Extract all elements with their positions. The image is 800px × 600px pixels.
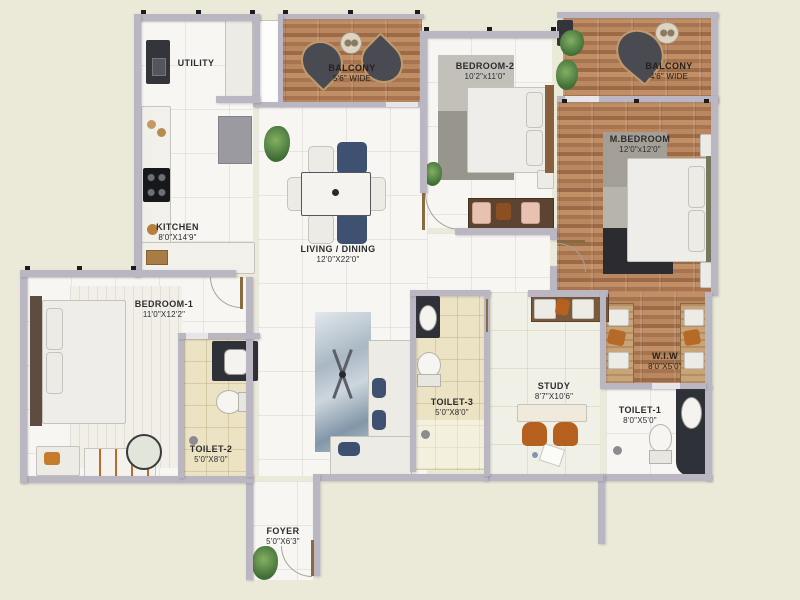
room-dims: 8'0"X5'0" xyxy=(607,416,673,427)
washer-door xyxy=(152,58,166,76)
dining-chair-navy xyxy=(337,142,367,174)
wardrobe-shelf-item xyxy=(684,309,704,326)
room-name: BEDROOM-2 xyxy=(445,60,525,72)
room-name: TOILET-3 xyxy=(420,396,484,408)
wall xyxy=(134,270,236,277)
shower-head xyxy=(421,430,430,439)
room-dims: 5'0"X8'0" xyxy=(178,455,244,466)
room-label-living-dining: LIVING / DINING 12'0"X22'0" xyxy=(288,243,388,266)
pillow xyxy=(688,166,705,208)
room-label-bedroom-1: BEDROOM-1 11'0"X12'2" xyxy=(123,298,205,321)
cabinet-item xyxy=(44,452,60,465)
room-dims: 5'6" WIDE xyxy=(312,74,392,85)
bench-cushion xyxy=(534,299,556,319)
room-label-bedroom-2: BEDROOM-2 10'2"x11'0" xyxy=(445,60,525,83)
wall xyxy=(483,474,603,481)
kitchen-bowl xyxy=(147,120,156,129)
study-chair xyxy=(553,422,578,446)
wardrobe-shelf-item xyxy=(607,328,627,346)
bench-pillow xyxy=(472,202,491,224)
pillow xyxy=(46,308,63,350)
wall xyxy=(420,31,559,38)
room-name: BALCONY xyxy=(630,60,708,72)
wall xyxy=(528,290,608,297)
room-name: STUDY xyxy=(518,380,590,392)
pillow xyxy=(688,210,705,252)
sofa-pillow xyxy=(372,378,386,398)
sink xyxy=(419,305,437,331)
toilet-tank xyxy=(649,450,672,464)
pillow xyxy=(526,130,543,166)
refrigerator xyxy=(218,116,252,164)
room-dims: 5'0"X8'0" xyxy=(420,408,484,419)
room-label-wiw: W.I.W 8'0"X5'0" xyxy=(634,350,696,373)
wall xyxy=(134,14,260,21)
master-bedroom-door xyxy=(557,240,585,243)
room-label-study: STUDY 8'7"X10'6" xyxy=(518,380,590,403)
sink xyxy=(224,349,248,375)
room-dims: 10'2"x11'0" xyxy=(445,72,525,83)
room-name: UTILITY xyxy=(166,57,226,69)
dining-chair-navy xyxy=(337,212,367,244)
wall xyxy=(550,228,557,240)
sofa-pillow xyxy=(338,442,360,456)
wall xyxy=(598,474,712,481)
wall xyxy=(20,476,253,483)
room-name: M.BEDROOM xyxy=(601,133,679,145)
bench-pillow xyxy=(496,203,511,220)
toilet-3-door xyxy=(486,299,488,332)
room-name: BALCONY xyxy=(312,62,392,74)
dining-chair-white xyxy=(308,146,334,174)
round-chair xyxy=(126,434,162,470)
wall xyxy=(216,96,260,103)
room-dims: 12'0"x12'0" xyxy=(601,145,679,156)
room-name: FOYER xyxy=(252,525,314,537)
room-name: LIVING / DINING xyxy=(288,243,388,255)
wall xyxy=(705,385,712,481)
bedroom-1-door xyxy=(240,277,243,309)
study-desk xyxy=(517,404,587,422)
balcony-table xyxy=(340,32,362,54)
room-name: BEDROOM-1 xyxy=(123,298,205,310)
room-dims: 5'0"X6'3" xyxy=(252,537,314,548)
balcony-1-door xyxy=(386,102,418,107)
wall xyxy=(410,290,416,472)
room-label-utility: UTILITY xyxy=(166,57,226,69)
room-label-kitchen: KITCHEN 8'0"X14'9" xyxy=(140,221,215,244)
wall xyxy=(278,14,283,106)
room-label-master-bedroom: M.BEDROOM 12'0"x12'0" xyxy=(601,133,679,156)
fan-hub xyxy=(339,371,346,378)
wardrobe-shelf-item xyxy=(608,309,629,326)
room-label-balcony-2: BALCONY 4'6" WIDE xyxy=(630,60,708,83)
room-dims: 8'0"X5'0" xyxy=(634,362,696,373)
toilet-tank xyxy=(417,374,441,387)
kitchen-bowl xyxy=(157,128,166,137)
room-name: KITCHEN xyxy=(140,221,215,233)
utility-cabinet xyxy=(225,20,253,100)
wall xyxy=(320,474,488,481)
bench-pillow xyxy=(521,202,540,224)
room-label-foyer: FOYER 5'0"X6'3" xyxy=(252,525,314,548)
floor-plan: UTILITY BALCONY 5'6" WIDE BEDROOM-2 10'2… xyxy=(0,0,800,600)
toilet-2-door xyxy=(186,333,208,339)
table-centerpiece xyxy=(332,189,339,196)
study-dot xyxy=(532,452,538,458)
wall xyxy=(455,228,557,235)
bench-cushion xyxy=(572,299,594,319)
balcony-2-door xyxy=(565,96,599,102)
room-name: TOILET-1 xyxy=(607,404,673,416)
room-label-toilet-2: TOILET-2 5'0"X8'0" xyxy=(178,443,244,466)
wardrobe-shelf-item xyxy=(683,329,701,347)
cooktop xyxy=(143,168,170,202)
room-dims: 12'0"X22'0" xyxy=(288,255,388,266)
living-corridor-floor xyxy=(427,233,550,292)
sink xyxy=(681,397,702,429)
wall xyxy=(420,38,427,193)
wall xyxy=(711,12,718,104)
room-dims: 11'0"X12'2" xyxy=(123,310,205,321)
wall xyxy=(313,474,320,576)
room-dims: 8'7"X10'6" xyxy=(518,392,590,403)
bedroom-1-headboard xyxy=(30,296,42,426)
study-chair xyxy=(522,422,547,446)
dining-chair-white xyxy=(308,214,334,244)
toilet xyxy=(649,424,672,452)
wall xyxy=(20,270,141,277)
bedroom-2-headboard xyxy=(545,85,554,173)
pillow xyxy=(526,92,543,128)
room-dims: 4'6" WIDE xyxy=(630,72,708,83)
wall xyxy=(253,14,260,106)
shower-area xyxy=(416,420,485,468)
sofa-pillow xyxy=(372,410,386,430)
wardrobe-shelf-item xyxy=(608,352,629,369)
wall xyxy=(410,290,490,296)
room-name: W.I.W xyxy=(634,350,696,362)
room-label-toilet-1: TOILET-1 8'0"X5'0" xyxy=(607,404,673,427)
room-label-toilet-3: TOILET-3 5'0"X8'0" xyxy=(420,396,484,419)
bench-pillow xyxy=(555,298,571,316)
wall xyxy=(711,96,718,296)
wall xyxy=(246,277,253,477)
balcony-table xyxy=(655,22,679,44)
wall xyxy=(20,270,27,483)
wall xyxy=(557,12,718,18)
cutting-board xyxy=(146,250,168,265)
room-dims: 8'0"X14'9" xyxy=(140,233,215,244)
pillow xyxy=(46,352,63,394)
wall xyxy=(598,474,605,544)
toilet-1-door xyxy=(652,383,680,389)
room-name: TOILET-2 xyxy=(178,443,244,455)
wall xyxy=(600,292,606,387)
wall xyxy=(278,14,424,19)
shower-head xyxy=(613,446,622,455)
wall xyxy=(705,292,712,389)
bedroom-2-door xyxy=(422,193,425,230)
room-label-balcony-1: BALCONY 5'6" WIDE xyxy=(312,62,392,85)
